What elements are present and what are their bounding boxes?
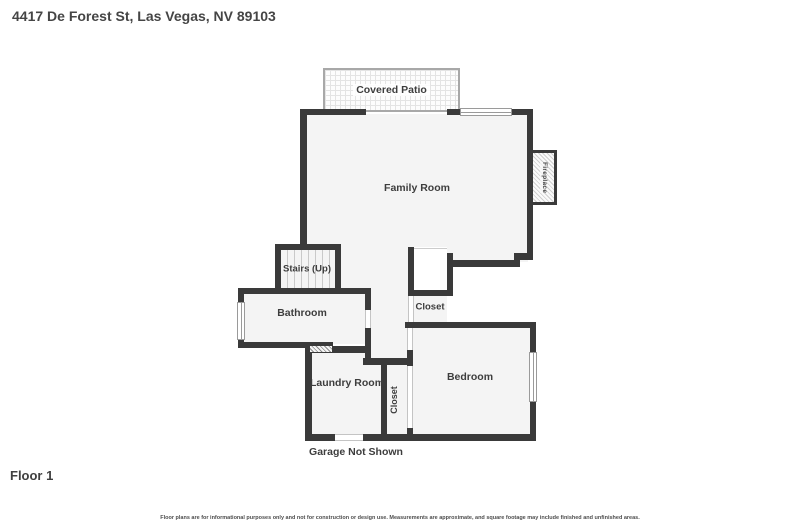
opening-edge-line (414, 248, 447, 249)
wall (305, 434, 335, 441)
hallway-floor (366, 294, 410, 361)
dead-space (414, 247, 447, 296)
wall (275, 244, 341, 250)
floor-plan-page: 4417 De Forest St, Las Vegas, NV 89103 C… (0, 0, 800, 530)
wall (363, 358, 412, 365)
wall (300, 109, 307, 250)
room-label-hall-closet: Closet (415, 302, 444, 313)
wall (238, 288, 371, 294)
room-label-bedroom: Bedroom (447, 371, 493, 383)
laundry-door-opening (335, 434, 363, 441)
wall (365, 288, 371, 310)
room-label-laundry: Laundry Room (310, 377, 384, 389)
wall (405, 322, 536, 328)
fireplace: Fireplace (530, 150, 557, 205)
bathroom-floor (244, 294, 365, 344)
covered-patio: Covered Patio (323, 68, 460, 112)
room-label-fireplace: Fireplace (540, 162, 547, 193)
room-label-family-room: Family Room (384, 182, 450, 194)
wall (363, 434, 536, 441)
bedroom-closet-opening (407, 366, 413, 428)
room-label-bathroom: Bathroom (277, 307, 327, 319)
wall (514, 253, 533, 260)
wall (335, 244, 341, 294)
wall (381, 361, 387, 438)
wall (447, 260, 520, 267)
hatched-wall-opening (309, 345, 333, 353)
room-label-stairs: Stairs (Up) (283, 264, 331, 275)
address-title: 4417 De Forest St, Las Vegas, NV 89103 (12, 8, 276, 24)
floor-number-label: Floor 1 (10, 468, 53, 483)
wall (407, 428, 413, 438)
hall-passage-floor (341, 246, 408, 294)
wall (447, 109, 461, 115)
garage-note-label: Garage Not Shown (309, 446, 403, 458)
wall (333, 346, 371, 353)
wall (275, 244, 281, 294)
wall (408, 247, 414, 296)
wall (408, 290, 453, 296)
bedroom-door-opening (407, 328, 413, 350)
wall (407, 350, 413, 366)
bathroom-door-opening (365, 310, 371, 328)
disclaimer-text: Floor plans are for informational purpos… (0, 515, 800, 521)
window (237, 302, 245, 340)
window (529, 352, 537, 402)
room-label-covered-patio: Covered Patio (353, 84, 430, 96)
room-label-bedroom-closet: Closet (389, 386, 399, 414)
wall (300, 109, 366, 115)
wall (305, 346, 312, 440)
hall-closet-door-opening (408, 296, 414, 322)
window (460, 108, 512, 116)
